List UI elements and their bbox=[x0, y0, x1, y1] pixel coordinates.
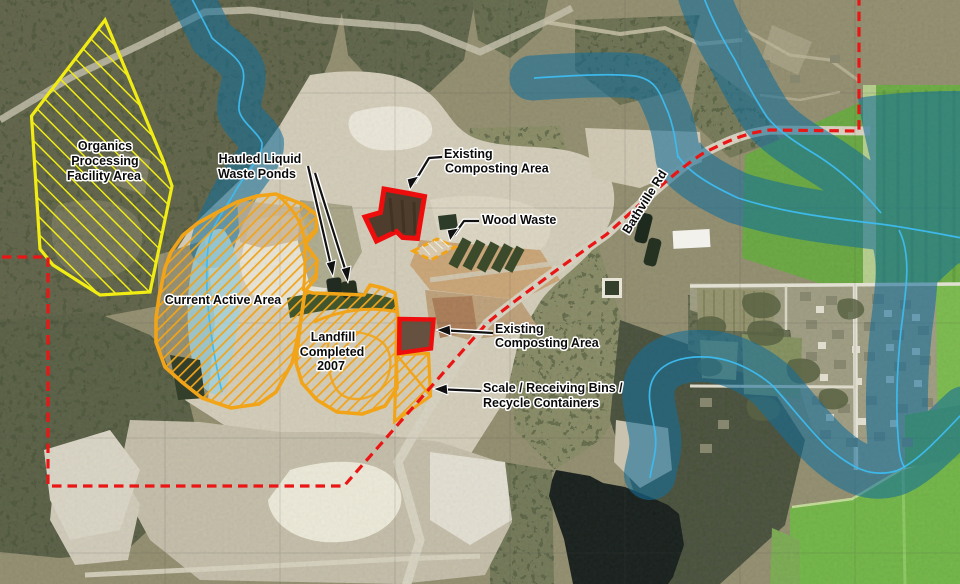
svg-text:Composting Area: Composting Area bbox=[495, 336, 600, 350]
svg-text:Organics: Organics bbox=[78, 139, 132, 153]
svg-text:Current Active Area: Current Active Area bbox=[165, 293, 283, 307]
svg-text:Wood Waste: Wood Waste bbox=[482, 213, 556, 227]
svg-text:Facility Area: Facility Area bbox=[67, 169, 142, 183]
svg-text:Scale / Receiving Bins /: Scale / Receiving Bins / bbox=[483, 381, 623, 395]
svg-text:2007: 2007 bbox=[317, 359, 345, 373]
svg-text:Recycle Containers: Recycle Containers bbox=[483, 396, 599, 410]
svg-text:Existing: Existing bbox=[444, 147, 493, 161]
svg-text:Processing: Processing bbox=[71, 154, 138, 168]
svg-text:Completed: Completed bbox=[300, 345, 365, 359]
svg-text:Waste Ponds: Waste Ponds bbox=[218, 167, 296, 181]
svg-text:Composting Area: Composting Area bbox=[445, 162, 550, 176]
svg-text:Landfill: Landfill bbox=[311, 330, 355, 344]
svg-text:Existing: Existing bbox=[495, 322, 544, 336]
svg-text:Hauled Liquid: Hauled Liquid bbox=[219, 152, 302, 166]
